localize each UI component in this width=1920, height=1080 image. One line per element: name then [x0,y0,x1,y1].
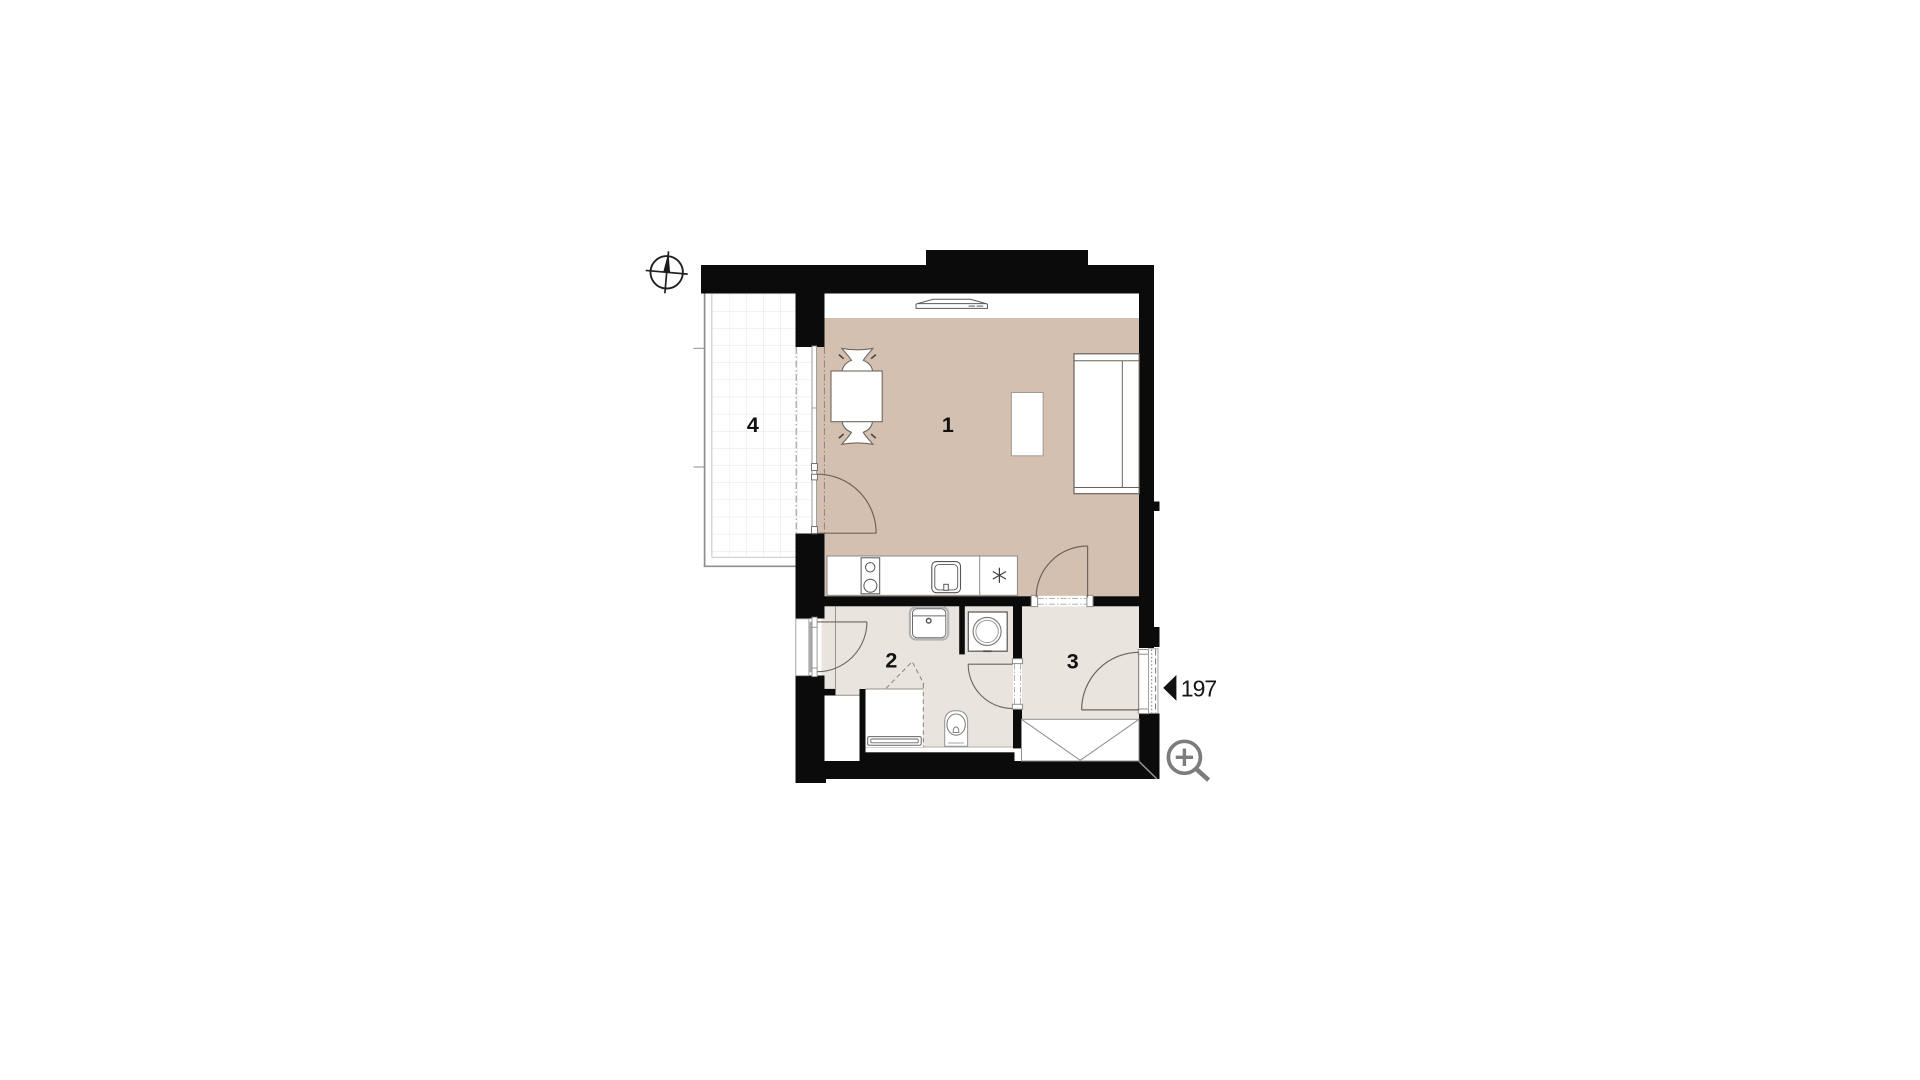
svg-text:1: 1 [942,413,954,437]
svg-text:3: 3 [1067,650,1079,674]
svg-text:2: 2 [885,648,897,672]
svg-text:197: 197 [1181,675,1217,701]
svg-text:4: 4 [747,413,759,437]
